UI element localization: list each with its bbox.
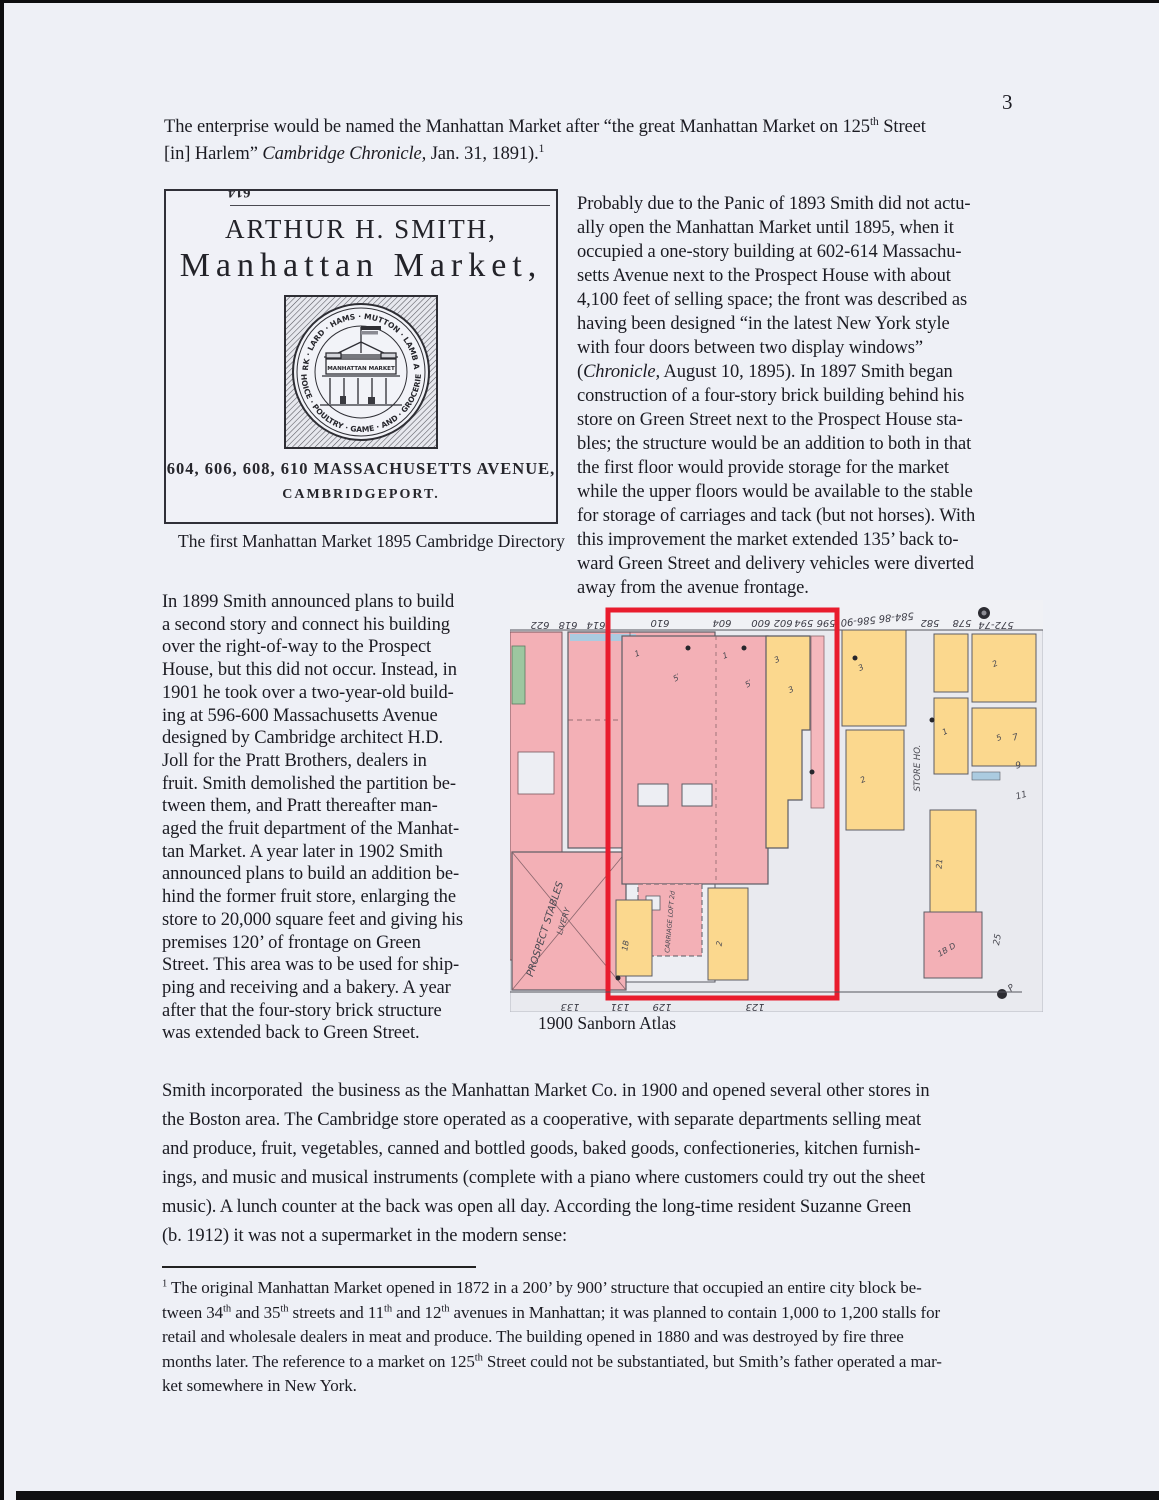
map-market-block: 1 5′ 1 5′: [622, 636, 768, 884]
intro-paragraph: The enterprise would be named the Manhat…: [164, 114, 1034, 168]
svg-text:618: 618: [558, 619, 577, 630]
ad-address-line2: CAMBRIDGEPORT.: [166, 487, 556, 503]
sanborn-map-figure: 622 618 614 610 604 602 600 596 594 586-…: [510, 600, 1043, 1012]
scanned-document-page: 3 The enterprise would be named the Manh…: [0, 0, 1159, 1500]
svg-text:129: 129: [652, 1001, 671, 1012]
svg-text:572-74: 572-74: [978, 619, 1013, 630]
map-caption: 1900 Sanborn Atlas: [538, 1013, 676, 1034]
footnote-paragraph: 1 The original Manhattan Market opened i…: [162, 1276, 1042, 1399]
svg-text:123: 123: [745, 1001, 764, 1012]
svg-text:610: 610: [650, 617, 669, 628]
scan-edge-left: [0, 0, 4, 1500]
right-column-paragraph: Probably due to the Panic of 1893 Smith …: [577, 192, 1027, 600]
seal-building-sign: MANHATTAN MARKET: [327, 366, 395, 372]
svg-text:STORE HO.: STORE HO.: [913, 745, 923, 792]
svg-text:604: 604: [712, 617, 731, 628]
svg-text:602 600: 602 600: [751, 617, 792, 628]
advertisement-clipping: 614 ARTHUR H. SMITH, Manhattan Market,: [164, 189, 558, 524]
svg-text:614: 614: [586, 619, 605, 630]
svg-text:578: 578: [952, 617, 971, 628]
ad-proprietor-name: ARTHUR H. SMITH,: [166, 214, 556, 245]
svg-text:622: 622: [530, 619, 549, 630]
map-green-building: [512, 646, 525, 704]
ad-cropped-number: 614: [228, 189, 251, 200]
ad-seal-engraving: BEEF · PORK · LARD · HAMS · MUTTON · LAM…: [282, 293, 440, 456]
svg-text:21: 21: [935, 858, 945, 869]
ad-address-line1: 604, 606, 608, 610 MASSACHUSETTS AVENUE,: [166, 459, 556, 479]
page-number: 3: [1002, 90, 1013, 115]
scan-edge-top: [0, 0, 1159, 3]
ad-market-name: Manhattan Market,: [166, 247, 556, 285]
svg-text:1B: 1B: [620, 940, 631, 952]
scan-edge-bottom: [16, 1491, 1159, 1500]
footnote-rule: [162, 1266, 476, 1268]
ad-caption: The first Manhattan Market 1895 Cambridg…: [178, 531, 565, 552]
left-column-paragraph: In 1899 Smith announced plans to builda …: [162, 591, 514, 1045]
body-paragraph: Smith incorporated the business as the M…: [162, 1077, 1042, 1251]
svg-text:25: 25: [992, 933, 1004, 946]
ad-top-rule: [230, 205, 550, 206]
svg-text:133: 133: [560, 1001, 579, 1012]
svg-text:596 594: 596 594: [794, 617, 835, 628]
svg-text:582: 582: [920, 617, 939, 628]
svg-text:131: 131: [610, 1001, 629, 1012]
